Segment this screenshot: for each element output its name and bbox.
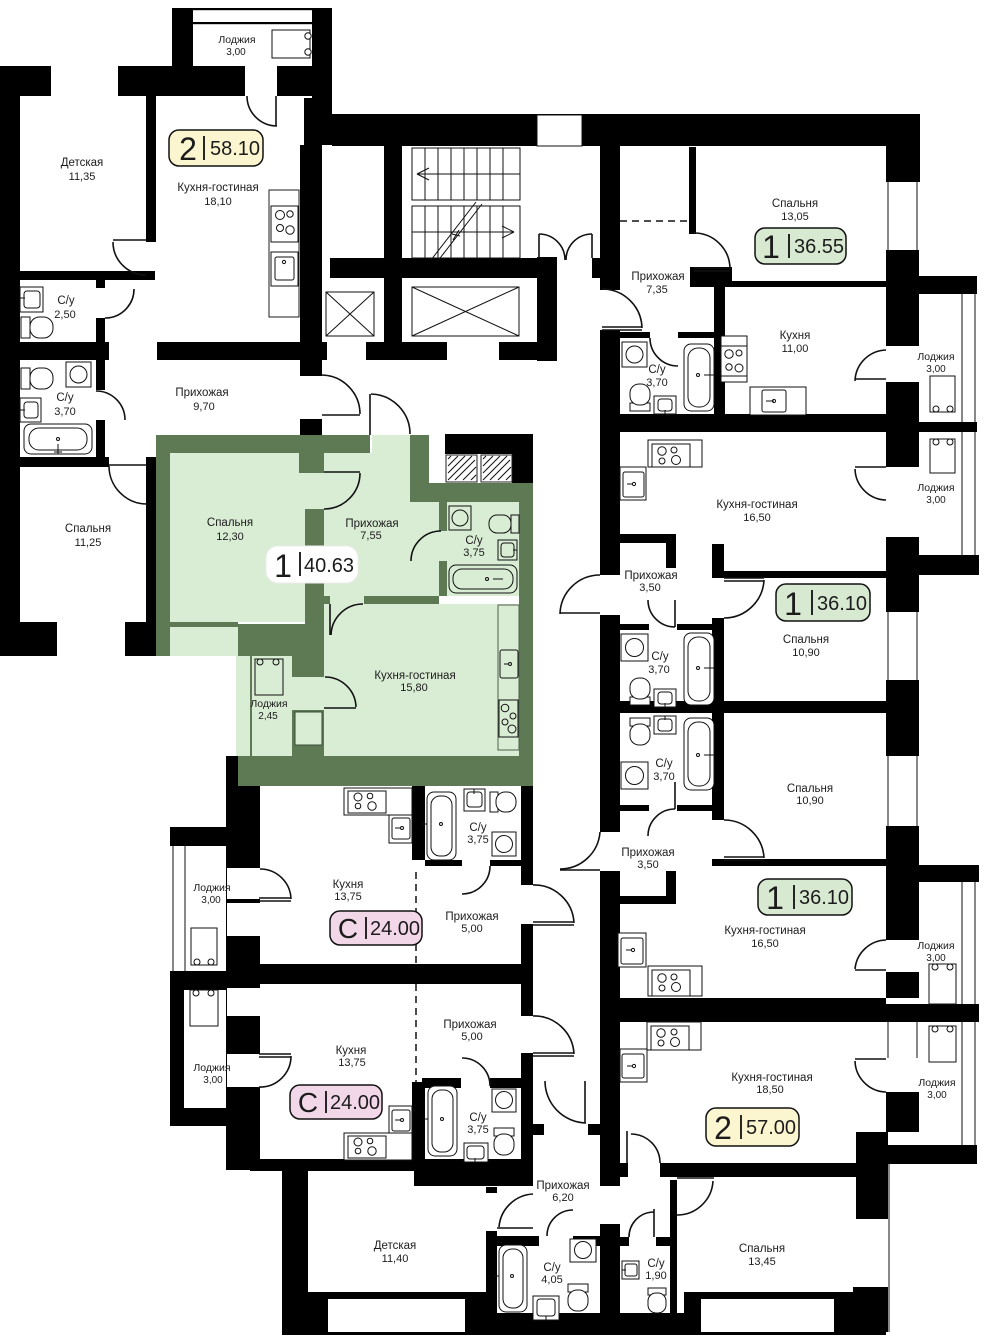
svg-text:Лоджия: Лоджия — [918, 1077, 955, 1089]
svg-text:3,00: 3,00 — [201, 895, 221, 906]
svg-text:3,00: 3,00 — [203, 1075, 223, 1086]
svg-text:4,05: 4,05 — [541, 1274, 562, 1286]
svg-text:3,00: 3,00 — [926, 495, 946, 506]
svg-text:Кухня: Кухня — [780, 330, 811, 342]
svg-text:16,50: 16,50 — [751, 938, 779, 950]
svg-text:11,40: 11,40 — [382, 1253, 409, 1265]
svg-text:3,50: 3,50 — [637, 859, 658, 871]
svg-text:13,45: 13,45 — [748, 1256, 776, 1268]
svg-text:3,70: 3,70 — [648, 664, 669, 676]
svg-text:24.00: 24.00 — [330, 1092, 380, 1114]
svg-text:С/у: С/у — [543, 1262, 561, 1274]
svg-text:Спальня: Спальня — [772, 198, 818, 210]
svg-text:Прихожая: Прихожая — [631, 271, 684, 283]
svg-text:Кухня-гостиная: Кухня-гостиная — [177, 182, 258, 194]
svg-text:Прихожая: Прихожая — [345, 518, 398, 530]
svg-text:С: С — [298, 1087, 318, 1118]
svg-text:Прихожая: Прихожая — [443, 1019, 496, 1031]
svg-text:2,50: 2,50 — [54, 309, 75, 321]
svg-text:1: 1 — [784, 586, 802, 622]
svg-text:Прихожая: Прихожая — [624, 570, 677, 582]
svg-text:13,75: 13,75 — [338, 1057, 366, 1069]
svg-text:С/у: С/у — [651, 651, 669, 663]
svg-text:1: 1 — [274, 548, 292, 584]
svg-text:Лоджия: Лоджия — [193, 882, 230, 894]
svg-text:40.63: 40.63 — [304, 555, 354, 577]
svg-text:Прихожая: Прихожая — [445, 911, 498, 923]
svg-text:18,50: 18,50 — [756, 1084, 784, 1096]
svg-text:2,45: 2,45 — [258, 711, 278, 722]
svg-text:С/у: С/у — [469, 822, 487, 834]
svg-text:11,00: 11,00 — [782, 343, 809, 355]
svg-text:5,00: 5,00 — [461, 923, 482, 935]
svg-text:11,35: 11,35 — [69, 171, 96, 183]
svg-text:Детская: Детская — [61, 157, 104, 169]
svg-text:12,30: 12,30 — [216, 531, 244, 543]
svg-text:3,70: 3,70 — [653, 771, 674, 783]
svg-text:2: 2 — [714, 1110, 732, 1146]
svg-text:3,00: 3,00 — [926, 953, 946, 964]
svg-text:57.00: 57.00 — [746, 1117, 796, 1139]
svg-text:Спальня: Спальня — [65, 523, 111, 535]
svg-text:3,70: 3,70 — [54, 406, 75, 418]
svg-text:3,00: 3,00 — [926, 364, 946, 375]
svg-text:3,70: 3,70 — [646, 377, 667, 389]
svg-text:Кухня: Кухня — [336, 1045, 367, 1057]
svg-text:9,70: 9,70 — [193, 401, 214, 413]
svg-text:7,55: 7,55 — [360, 530, 381, 542]
svg-text:11,25: 11,25 — [75, 537, 102, 549]
svg-text:С/у: С/у — [57, 295, 75, 307]
svg-text:Прихожая: Прихожая — [536, 1180, 589, 1192]
svg-text:1: 1 — [766, 880, 784, 916]
svg-text:3,75: 3,75 — [467, 1124, 488, 1136]
svg-text:10,90: 10,90 — [792, 647, 820, 659]
svg-text:Лоджия: Лоджия — [917, 940, 954, 952]
svg-text:Кухня-гостиная: Кухня-гостиная — [724, 925, 805, 937]
svg-text:С/у: С/у — [647, 1258, 665, 1270]
svg-text:Кухня-гостиная: Кухня-гостиная — [374, 670, 455, 682]
svg-text:Кухня: Кухня — [333, 879, 364, 891]
svg-text:24.00: 24.00 — [370, 918, 420, 940]
svg-text:13,75: 13,75 — [334, 891, 362, 903]
svg-text:Прихожая: Прихожая — [621, 847, 674, 859]
svg-text:Лоджия: Лоджия — [917, 482, 954, 494]
svg-text:С/у: С/у — [469, 1112, 487, 1124]
svg-text:5,00: 5,00 — [461, 1031, 482, 1043]
svg-text:Кухня-гостиная: Кухня-гостиная — [731, 1072, 812, 1084]
svg-text:С/у: С/у — [655, 758, 673, 770]
svg-text:7,35: 7,35 — [646, 284, 667, 296]
svg-text:Лоджия: Лоджия — [193, 1062, 230, 1074]
svg-text:Кухня-гостиная: Кухня-гостиная — [716, 499, 797, 511]
svg-text:С/у: С/у — [56, 392, 74, 404]
svg-text:Прихожая: Прихожая — [175, 387, 228, 399]
svg-text:36.10: 36.10 — [817, 593, 867, 615]
svg-text:Лоджия: Лоджия — [250, 698, 287, 710]
svg-text:16,50: 16,50 — [743, 512, 771, 524]
svg-text:С/у: С/у — [648, 364, 666, 376]
svg-text:1,90: 1,90 — [645, 1270, 666, 1282]
svg-text:6,20: 6,20 — [552, 1192, 573, 1204]
svg-text:58.10: 58.10 — [210, 138, 260, 160]
svg-text:3,50: 3,50 — [639, 582, 660, 594]
svg-text:Лоджия: Лоджия — [917, 351, 954, 363]
svg-text:3,00: 3,00 — [226, 47, 246, 58]
svg-text:13,05: 13,05 — [781, 211, 809, 223]
svg-text:3,75: 3,75 — [467, 834, 488, 846]
svg-text:18,10: 18,10 — [204, 196, 232, 208]
svg-text:1: 1 — [762, 229, 780, 265]
svg-text:Детская: Детская — [374, 1240, 417, 1252]
svg-text:С: С — [338, 913, 358, 944]
svg-text:10,90: 10,90 — [796, 795, 824, 807]
svg-text:С/у: С/у — [465, 535, 483, 547]
svg-text:36.10: 36.10 — [799, 887, 849, 909]
svg-text:36.55: 36.55 — [794, 236, 844, 258]
svg-text:Лоджия: Лоджия — [218, 34, 255, 46]
svg-text:Спальня: Спальня — [739, 1243, 785, 1255]
svg-text:Спальня: Спальня — [783, 634, 829, 646]
svg-text:3,75: 3,75 — [463, 547, 484, 559]
svg-text:15,80: 15,80 — [400, 682, 428, 694]
svg-text:3,00: 3,00 — [927, 1090, 947, 1101]
svg-text:Спальня: Спальня — [207, 517, 253, 529]
svg-text:2: 2 — [179, 131, 197, 167]
svg-text:Спальня: Спальня — [787, 783, 833, 795]
